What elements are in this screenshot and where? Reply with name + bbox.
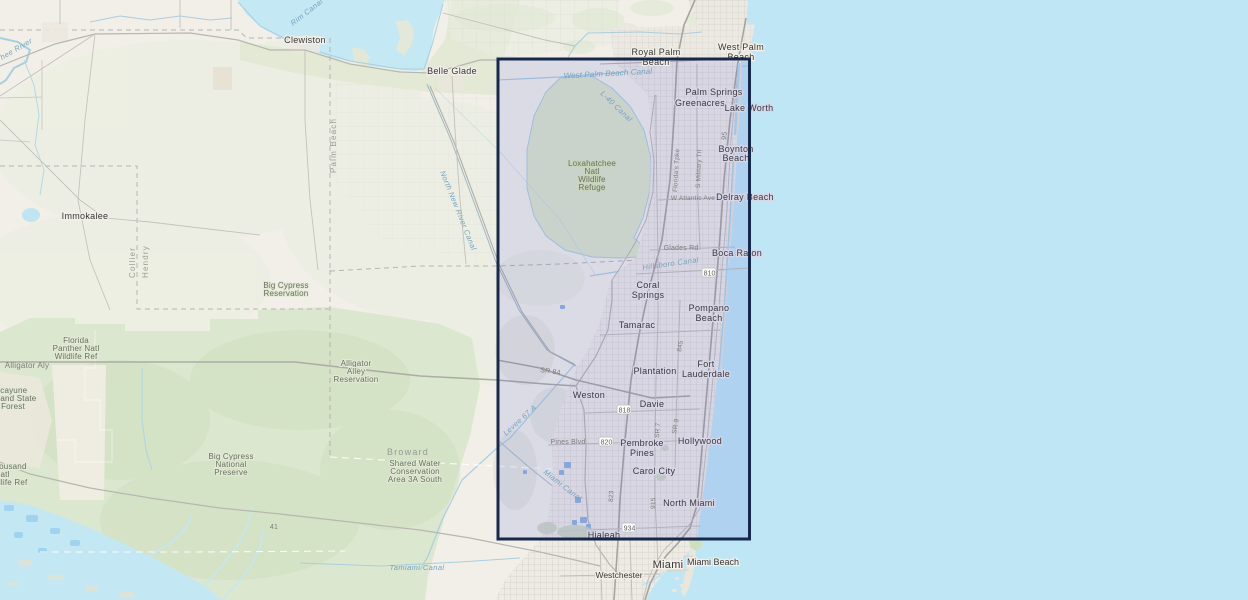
svg-text:Miami: Miami: [653, 559, 684, 571]
svg-text:Westchester: Westchester: [595, 570, 642, 580]
svg-text:818: 818: [619, 408, 631, 415]
svg-text:Palm Springs: Palm Springs: [685, 87, 742, 97]
svg-text:Wildlife Ref: Wildlife Ref: [55, 352, 98, 361]
svg-text:41: 41: [270, 524, 278, 531]
svg-text:Collier: Collier: [128, 247, 137, 278]
svg-text:823: 823: [608, 490, 615, 502]
svg-text:Pompano: Pompano: [689, 303, 730, 313]
svg-text:Refuge: Refuge: [579, 183, 606, 192]
svg-text:Belle Glade: Belle Glade: [427, 66, 477, 76]
svg-text:West Palm: West Palm: [718, 42, 764, 52]
svg-text:North Miami: North Miami: [663, 498, 715, 508]
svg-text:915: 915: [650, 497, 657, 509]
svg-text:Pines Blvd: Pines Blvd: [550, 439, 585, 446]
svg-text:810: 810: [704, 271, 716, 278]
svg-text:S Military Trl: S Military Trl: [695, 149, 703, 188]
svg-text:Clewiston: Clewiston: [284, 35, 326, 45]
svg-text:Plantation: Plantation: [633, 366, 676, 376]
svg-text:95: 95: [721, 131, 729, 140]
svg-text:Weston: Weston: [573, 390, 605, 400]
svg-text:Miami Beach: Miami Beach: [687, 557, 739, 567]
svg-text:SR 7: SR 7: [654, 422, 662, 438]
svg-text:Greenacres: Greenacres: [675, 98, 725, 108]
svg-text:Hendry: Hendry: [141, 245, 150, 278]
svg-text:Reservation: Reservation: [264, 289, 309, 298]
svg-text:Pines: Pines: [630, 448, 654, 458]
svg-text:Broward: Broward: [387, 447, 429, 457]
svg-text:Lauderdale: Lauderdale: [682, 369, 730, 379]
svg-text:Carol City: Carol City: [633, 466, 676, 476]
svg-text:Pembroke: Pembroke: [620, 438, 663, 448]
svg-text:Glades Rd: Glades Rd: [664, 245, 699, 252]
svg-text:Alligator Aly: Alligator Aly: [5, 361, 49, 370]
svg-text:Palm Beach: Palm Beach: [329, 118, 338, 173]
svg-text:934: 934: [624, 526, 636, 533]
svg-text:Forest: Forest: [1, 402, 25, 411]
svg-text:Springs: Springs: [632, 290, 665, 300]
svg-text:Coral: Coral: [636, 280, 659, 290]
svg-text:Area 3A South: Area 3A South: [388, 475, 442, 484]
svg-text:Royal Palm: Royal Palm: [631, 47, 680, 57]
svg-text:Immokalee: Immokalee: [62, 211, 109, 221]
svg-text:Fort: Fort: [697, 359, 714, 369]
svg-text:Hollywood: Hollywood: [678, 436, 722, 446]
svg-text:Boca Raton: Boca Raton: [712, 248, 762, 258]
svg-text:Beach: Beach: [695, 313, 722, 323]
svg-text:Tamiami Canal: Tamiami Canal: [390, 563, 445, 572]
svg-text:W Atlantic Ave: W Atlantic Ave: [671, 195, 715, 202]
svg-text:820: 820: [601, 440, 613, 447]
svg-text:Tamarac: Tamarac: [619, 320, 656, 330]
svg-text:Beach: Beach: [722, 153, 749, 163]
svg-text:Preserve: Preserve: [214, 468, 248, 477]
svg-text:Wildlife Ref: Wildlife Ref: [0, 478, 28, 487]
svg-text:Delray Beach: Delray Beach: [716, 192, 774, 202]
svg-text:Reservation: Reservation: [334, 375, 379, 384]
svg-text:Davie: Davie: [640, 399, 665, 409]
